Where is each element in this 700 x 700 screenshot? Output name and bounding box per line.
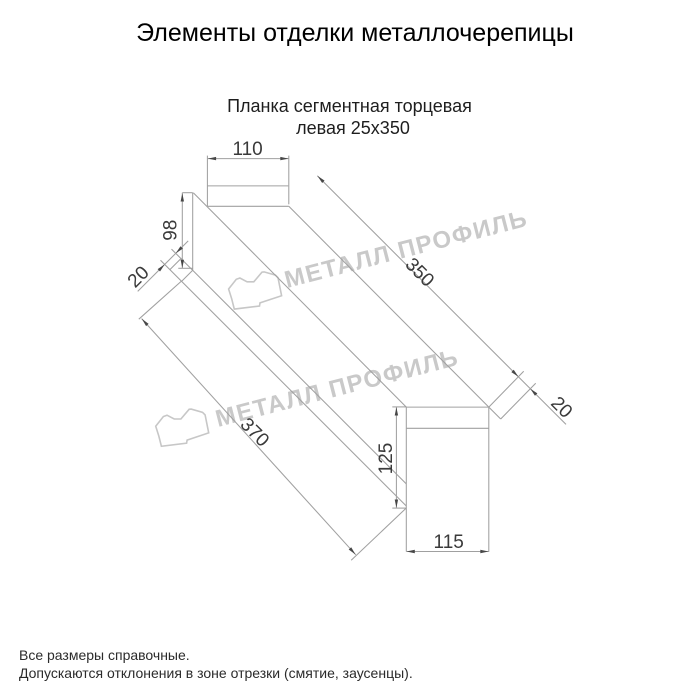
svg-text:20: 20	[546, 393, 576, 423]
svg-text:98: 98	[161, 220, 182, 241]
svg-text:20: 20	[124, 262, 154, 292]
svg-text:125: 125	[376, 443, 397, 475]
svg-text:МЕТАЛЛ ПРОФИЛЬ: МЕТАЛЛ ПРОФИЛЬ	[282, 205, 531, 294]
svg-text:110: 110	[232, 139, 262, 160]
svg-text:115: 115	[434, 532, 464, 553]
